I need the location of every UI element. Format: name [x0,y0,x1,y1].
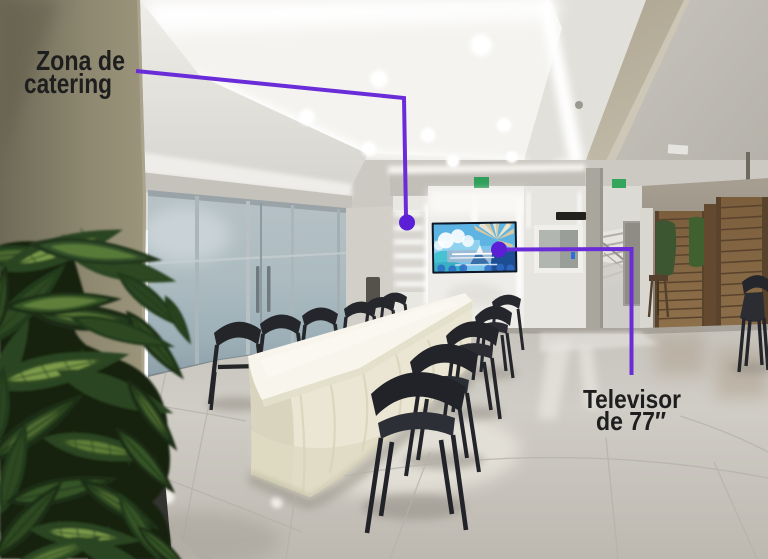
svg-text:catering: catering [24,68,112,99]
svg-text:de 77′′: de 77′′ [596,406,666,436]
